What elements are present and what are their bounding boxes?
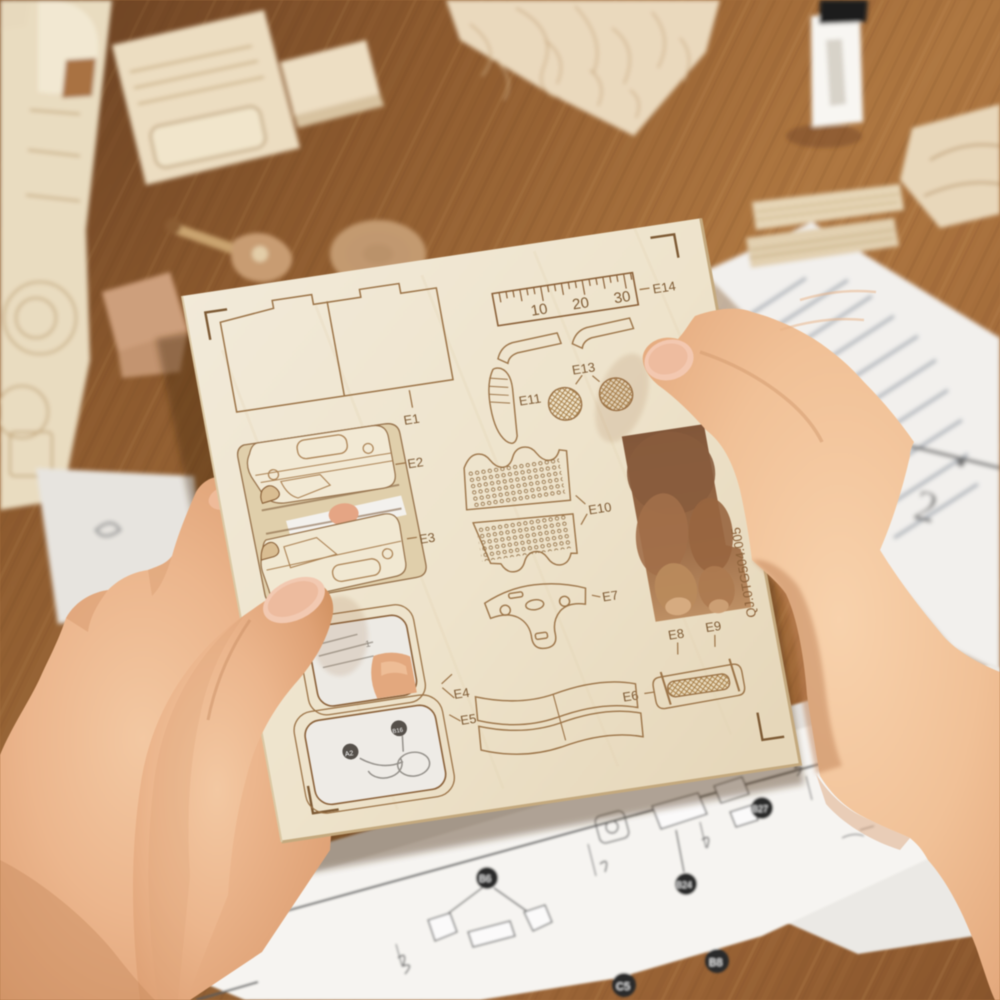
svg-text:10: 10	[529, 301, 549, 320]
svg-text:E2: E2	[406, 454, 424, 471]
svg-text:30: 30	[612, 288, 632, 307]
svg-text:E4: E4	[452, 685, 470, 702]
svg-text:20: 20	[571, 294, 591, 313]
svg-text:A2: A2	[344, 750, 354, 758]
svg-text:E9: E9	[704, 618, 722, 635]
svg-text:E8: E8	[667, 626, 685, 643]
svg-text:E7: E7	[601, 587, 619, 604]
svg-text:B6: B6	[479, 874, 492, 885]
svg-text:C5: C5	[616, 981, 630, 993]
svg-text:E1: E1	[402, 411, 420, 428]
svg-text:E3: E3	[418, 530, 436, 547]
svg-text:B24: B24	[676, 880, 692, 890]
svg-text:E5: E5	[459, 711, 477, 728]
svg-text:B8: B8	[709, 957, 722, 969]
svg-text:B27: B27	[752, 804, 768, 814]
